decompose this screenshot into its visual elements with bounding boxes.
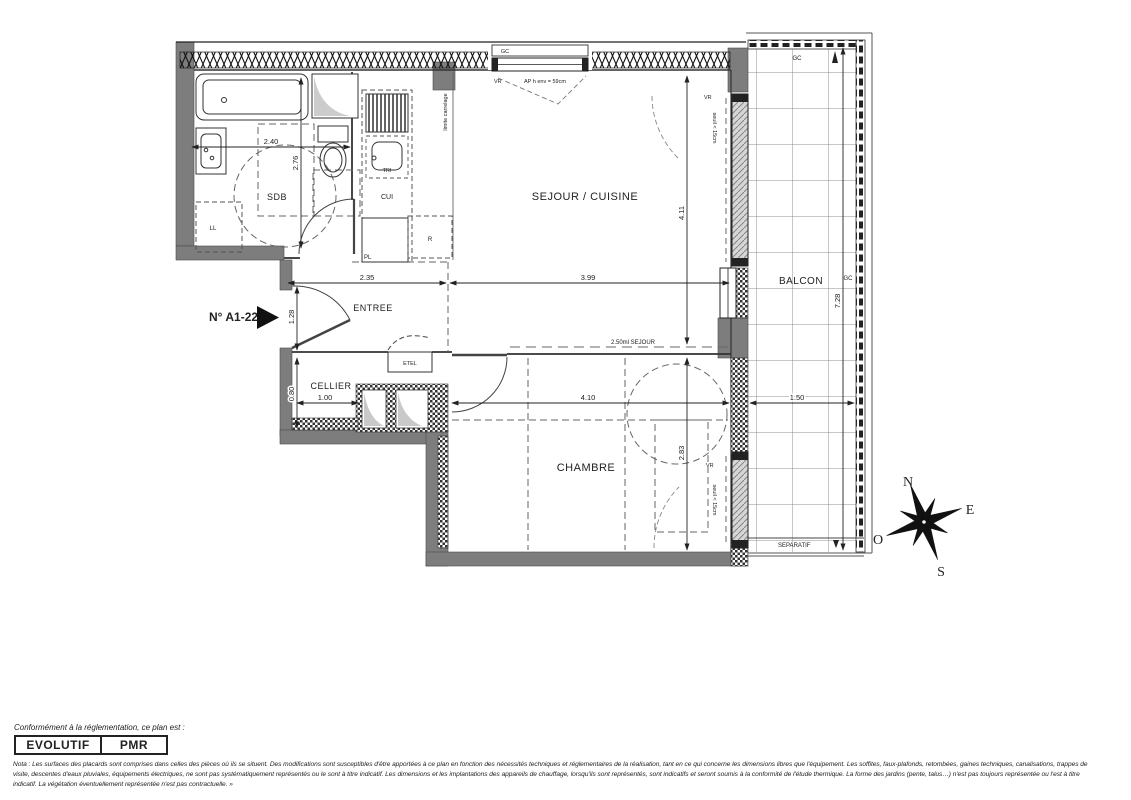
- sejour-fixed-window: [720, 268, 736, 318]
- sejour-ml-label: 2.50ml SEJOUR: [611, 340, 656, 346]
- room-label-cellier: CELLIER: [310, 381, 351, 391]
- wall-west: [176, 42, 194, 246]
- gc-window-label: GC: [501, 49, 509, 55]
- dim-chambre-w: 4.10: [581, 393, 596, 402]
- compass-south-label: S: [937, 565, 945, 580]
- entrance-arrow-icon: [257, 306, 279, 329]
- sink: [372, 142, 402, 170]
- badge-pmr: PMR: [102, 737, 166, 753]
- nota-text: Nota : Les surfaces des placards sont co…: [13, 760, 1125, 790]
- floor-plan-drawing: GC VR AP h env = 59cm VR seuil < 15cm VR…: [0, 0, 1131, 718]
- ap-height-label: AP h env = 59cm: [524, 79, 566, 85]
- etel-door-arc: [388, 336, 430, 350]
- sejour-balcony-door: VR seuil < 15cm: [652, 94, 748, 266]
- dim-sdb-w: 2.40: [264, 137, 279, 146]
- nota-line-3: indicatif. La végétation éventuellement …: [13, 780, 1125, 790]
- unit-number: N° A1-22: [209, 306, 279, 329]
- balcony: [746, 33, 872, 556]
- label-r: R: [428, 237, 433, 243]
- badge-evolutif: EVOLUTIF: [16, 737, 102, 753]
- vr-sejour-label: VR: [704, 95, 712, 101]
- wall-chambre-south: [426, 552, 746, 566]
- dim-balcon-h: 7.28: [833, 294, 842, 309]
- balcony-railing-right: [856, 40, 865, 552]
- dim-sdb-h: 2.76: [291, 156, 300, 171]
- compass-north-label: N: [903, 475, 913, 490]
- room-label-sdb: SDB: [267, 192, 287, 202]
- nota-line-2: visite, descentes d'eaux pluviales, équi…: [13, 770, 1125, 780]
- label-ll: LL: [210, 226, 217, 232]
- gc-balcony-top-label: GC: [793, 56, 803, 62]
- room-label-sejour: SEJOUR / CUISINE: [532, 191, 638, 203]
- label-cui: CUI: [381, 194, 393, 201]
- nota-line-1: Nota : Les surfaces des placards sont co…: [13, 760, 1125, 770]
- etel-box: ETEL: [388, 352, 432, 372]
- compass-west-label: O: [873, 533, 883, 548]
- dim-sejour-w: 3.99: [581, 273, 596, 282]
- dim-cellier-h: 0.80: [287, 387, 296, 402]
- cooktop: [366, 94, 408, 132]
- dashed-guides: [234, 124, 728, 550]
- dim-entree-w: 2.35: [360, 273, 375, 282]
- label-tri: TRI: [383, 168, 392, 174]
- etel-label: ETEL: [403, 361, 417, 367]
- dim-balcon-w: 1.50: [790, 393, 805, 402]
- label-pl: PL: [364, 255, 372, 261]
- washbasin: [196, 128, 226, 174]
- north-wall: [176, 42, 746, 552]
- conformity-label: Conformément à la réglementation, ce pla…: [14, 723, 185, 732]
- chambre-door-arc: [452, 357, 507, 412]
- seuil-chambre-label: seuil < 15cm: [711, 484, 717, 515]
- chambre-balcony-door: VR seuil < 15cm: [654, 452, 748, 548]
- room-label-chambre: CHAMBRE: [557, 462, 616, 474]
- limite-carrelage-label: limite carrelage: [443, 93, 449, 130]
- dim-sejour-h: 4.11: [677, 206, 686, 220]
- shower-unit: [312, 74, 358, 118]
- dim-entree-h: 1.28: [287, 310, 296, 325]
- gc-balcony-right-label: GC: [844, 276, 854, 282]
- wall-entree-west-upper: [280, 260, 292, 290]
- room-label-balcon: BALCON: [779, 276, 823, 287]
- faucet-icon: [372, 156, 376, 160]
- entry-door-arc: [292, 286, 350, 320]
- conformity-badges: EVOLUTIF PMR: [14, 735, 168, 755]
- seuil-sejour-label: seuil < 15cm: [711, 112, 717, 143]
- wall-sdb-south: [176, 246, 284, 260]
- washing-machine: [196, 202, 242, 252]
- compass-east-label: E: [966, 503, 975, 518]
- vr-chambre-label: VR: [706, 463, 714, 469]
- entry-door-leaf: [292, 320, 350, 348]
- room-label-entree: ENTREE: [353, 303, 393, 313]
- floor-plan-page: GC VR AP h env = 59cm VR seuil < 15cm VR…: [0, 0, 1131, 800]
- balcony-railing-top: [748, 40, 856, 49]
- kitchen-window: GC VR AP h env = 59cm: [488, 44, 592, 104]
- bathtub: [196, 74, 308, 120]
- wall-east-pier: [718, 318, 748, 358]
- dim-cellier-w: 1.00: [318, 393, 333, 402]
- toilet: [318, 126, 348, 177]
- compass-rose: N E S O: [873, 471, 976, 580]
- kitchen-block: [362, 90, 452, 262]
- dim-chambre-h: 2.83: [677, 446, 686, 461]
- separatif-label: SEPARATIF: [778, 543, 811, 549]
- vr-window-label: VR: [494, 79, 502, 85]
- sdb-door-arc: [299, 199, 354, 254]
- unit-number-label: N° A1-22: [209, 310, 258, 324]
- walls: [176, 42, 748, 566]
